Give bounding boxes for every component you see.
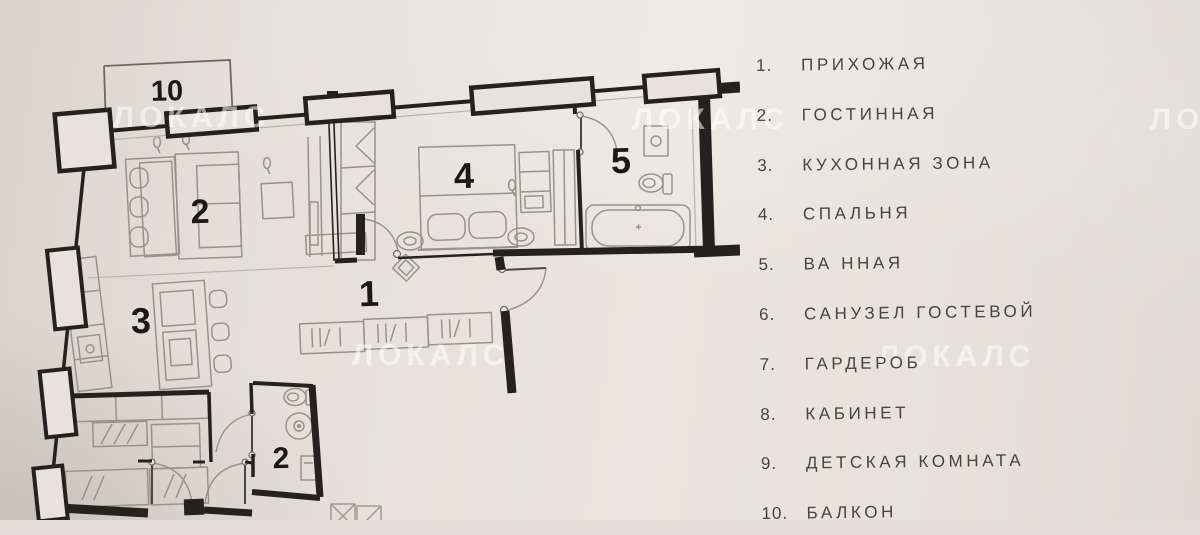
legend-item-label: ПРИХОЖАЯ: [801, 52, 929, 78]
legend-item: 10. БАЛКОН: [761, 501, 897, 527]
legend-item-number: 8.: [760, 402, 805, 427]
legend-item: 8. КАБИНЕТ: [760, 401, 909, 427]
legend-item-label: СПАЛЬНЯ: [803, 202, 912, 227]
legend-item-number: 10.: [761, 502, 806, 527]
legend-item: 1. ПРИХОЖАЯ: [756, 52, 929, 78]
legend-item: 9. ДЕТСКАЯ КОМНАТА: [761, 449, 1025, 476]
legend-item-label: ГОСТИННАЯ: [802, 102, 939, 128]
legend-item-number: 6.: [759, 302, 804, 327]
legend-item: 6. САНУЗЕЛ ГОСТЕВОЙ: [759, 300, 1036, 327]
legend-item: 7. ГАРДЕРОБ: [760, 351, 922, 377]
room-legend: 1. ПРИХОЖАЯ 2. ГОСТИННАЯ 3. КУХОННАЯ ЗОН…: [0, 0, 1200, 529]
legend-item: 3. КУХОННАЯ ЗОНА: [757, 151, 994, 178]
legend-item-label: БАЛКОН: [806, 501, 897, 526]
legend-item-number: 4.: [758, 203, 803, 228]
legend-item: 4. СПАЛЬНЯ: [758, 202, 912, 228]
legend-item-number: 9.: [761, 452, 806, 477]
legend-item: 2. ГОСТИННАЯ: [757, 102, 939, 128]
legend-item-label: КАБИНЕТ: [805, 401, 909, 426]
legend-item-label: САНУЗЕЛ ГОСТЕВОЙ: [804, 300, 1036, 327]
legend-item-number: 3.: [757, 153, 802, 178]
legend-item-label: ГАРДЕРОБ: [805, 351, 922, 376]
legend-item-label: ВА ННАЯ: [803, 251, 904, 276]
legend-item-label: КУХОННАЯ ЗОНА: [802, 151, 994, 177]
legend-item-label: ДЕТСКАЯ КОМНАТА: [806, 449, 1025, 476]
legend-item-number: 2.: [757, 103, 802, 128]
legend-item-number: 1.: [756, 53, 801, 78]
floor-plan-photo-page: { "photo": { "watermark_text": "ЛОКАЛС" …: [0, 0, 1200, 520]
legend-item-number: 7.: [760, 352, 805, 377]
legend-item: 5. ВА ННАЯ: [758, 251, 904, 277]
legend-item-number: 5.: [758, 253, 803, 278]
